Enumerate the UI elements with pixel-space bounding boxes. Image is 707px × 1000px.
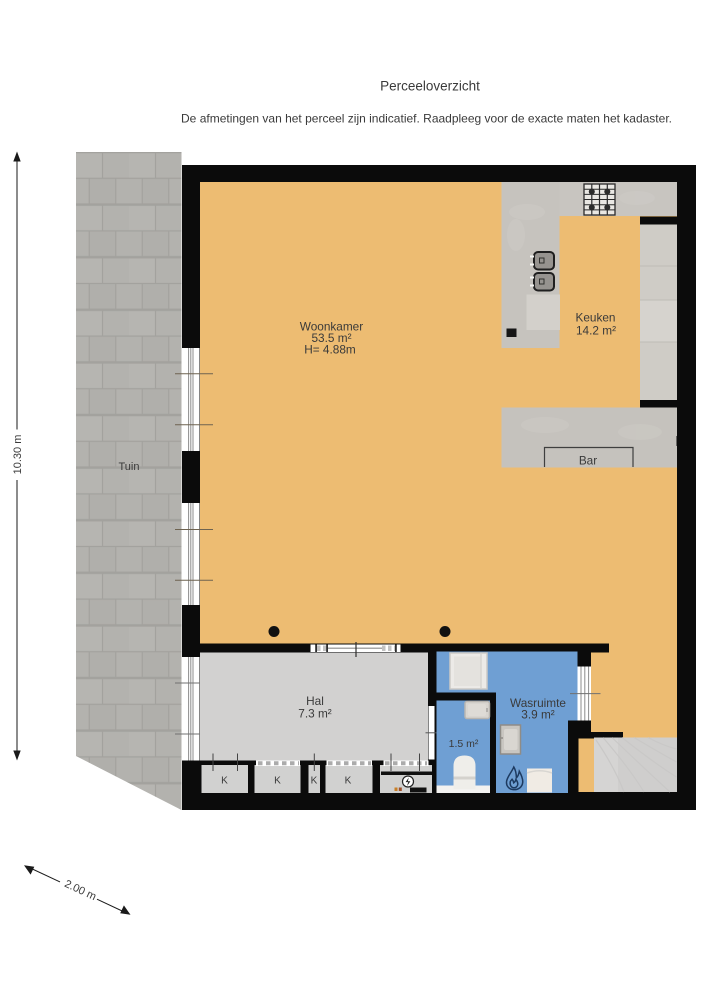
svg-text:Tuin: Tuin xyxy=(119,461,140,473)
svg-text:1.5 m²: 1.5 m² xyxy=(449,738,479,750)
svg-text:7.3 m²: 7.3 m² xyxy=(298,707,332,721)
svg-text:10.30 m: 10.30 m xyxy=(12,435,24,475)
svg-text:K: K xyxy=(345,776,352,787)
svg-text:Perceeloverzicht: Perceeloverzicht xyxy=(380,79,480,94)
svg-text:De afmetingen van het perceel: De afmetingen van het perceel zijn indic… xyxy=(181,112,672,126)
svg-text:Bar: Bar xyxy=(579,454,597,468)
svg-text:H= 4.88m: H= 4.88m xyxy=(304,343,356,357)
svg-text:K: K xyxy=(274,776,281,787)
svg-text:14.2 m²: 14.2 m² xyxy=(576,324,616,338)
svg-text:3.9 m²: 3.9 m² xyxy=(521,708,555,722)
svg-text:Keuken: Keuken xyxy=(575,311,615,325)
svg-text:K: K xyxy=(221,776,228,787)
svg-text:K: K xyxy=(311,776,318,787)
